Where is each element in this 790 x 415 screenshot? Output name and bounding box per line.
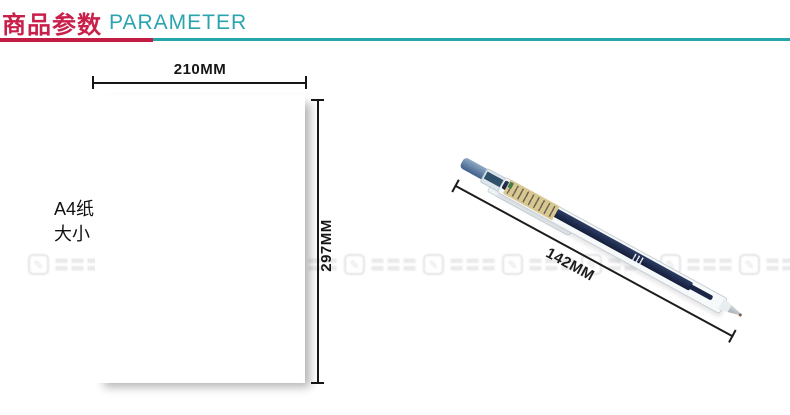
header-rule-red bbox=[0, 38, 153, 42]
paper-height-label-wrap: 297MM bbox=[296, 215, 356, 275]
paper-caption-line1: A4纸 bbox=[54, 197, 94, 222]
a4-paper-sheet bbox=[95, 95, 305, 383]
paper-caption: A4纸 大小 bbox=[54, 197, 94, 247]
watermark-text: 〓〓〓 bbox=[370, 254, 418, 275]
pen-logo-icon: ✎ bbox=[28, 254, 49, 275]
paper-width-label: 210MM bbox=[93, 61, 307, 78]
pen-logo-icon: ✎ bbox=[502, 254, 523, 275]
paper-height-label: 297MM bbox=[318, 219, 335, 272]
gel-pen-image bbox=[458, 154, 746, 322]
pen-tip-point bbox=[738, 312, 742, 316]
watermark-unit: ✎〓〓〓 bbox=[423, 254, 502, 275]
section-title-zh: 商品参数 bbox=[2, 12, 102, 39]
width-dimension-line bbox=[93, 82, 307, 84]
section-title-en: PARAMETER bbox=[109, 11, 247, 34]
paper-caption-line2: 大小 bbox=[54, 222, 94, 247]
header-rule-teal bbox=[153, 38, 790, 41]
watermark-unit: ✎〓〓〓 bbox=[739, 254, 790, 275]
height-dimension-tick-bottom bbox=[311, 382, 324, 384]
product-parameter-panel: 商品参数PARAMETER ✎〓〓〓 ✎〓〓〓 ✎〓〓〓 ✎〓〓〓 ✎〓〓〓 ✎… bbox=[0, 0, 790, 415]
watermark-text: 〓〓〓 bbox=[686, 254, 734, 275]
height-dimension-tick-top bbox=[311, 99, 324, 101]
watermark-text: 〓〓〓 bbox=[449, 254, 497, 275]
pen-logo-icon: ✎ bbox=[739, 254, 760, 275]
watermark-text: 〓〓〓 bbox=[765, 254, 790, 275]
section-header: 商品参数PARAMETER bbox=[2, 5, 247, 40]
pen-logo-icon: ✎ bbox=[423, 254, 444, 275]
